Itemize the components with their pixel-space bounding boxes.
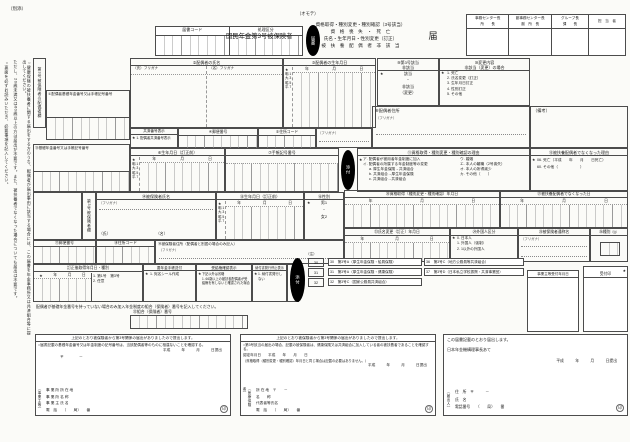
field-insured-sex-label: ⑯性別 [305, 193, 343, 200]
blank-box [33, 192, 82, 240]
spouse-birthdate-era-column: ★ 明.1 大.3 昭.5 平.7 [284, 67, 293, 127]
spouse-birthdate-input[interactable] [293, 73, 375, 127]
alias-furigana-input[interactable] [521, 246, 587, 247]
legend-30: 30 第3号A（厚生年金保険・船員保険） [328, 258, 422, 266]
option-female[interactable]: 女2 [305, 214, 343, 221]
insurer-submit-date: 平成 年 月 日提出 [241, 363, 435, 368]
loss-reason-death[interactable]: 06. 死亡（平成 年 月 日死亡） [537, 157, 625, 164]
field-change-content-sublabel: 非該当（変更）の場合 [441, 65, 528, 70]
field-shubetsu-label: ㉖種別 [599, 230, 610, 234]
employer-line-phone[interactable]: 電 話 （ 局） 番 [46, 407, 217, 413]
employer-role-label: （事業主等） [38, 387, 43, 413]
ymd-day-label: 日 [430, 237, 434, 242]
ymd-month-label: 月 [263, 201, 267, 206]
field-acquisition-date: ⑳資格取得（種別変更・種別確認）年月日 年 月 日 [344, 190, 500, 228]
spouse-address-furigana-area: （フリガナ） [316, 128, 372, 148]
furigana-label: （フリガナ） [317, 129, 371, 135]
field-insured-address-code: ⑱住所コード [96, 240, 155, 264]
approval-table: 事務センター長 所 長 副事務センター長 副 所 長 グループ長 課 長 担 当… [466, 14, 626, 56]
field-spouse-address-code: ⑤住所コード [258, 128, 316, 148]
insurer-confirm-text: ○第3号該当の届出の場合、記載の被保険者は、健康保険又は共済組合に加入している者… [241, 342, 435, 353]
option-separator: ・ [305, 207, 343, 214]
insurer-line-phone[interactable]: 電 話 （ 局） 番 [256, 407, 422, 413]
era-heisei: 平.7 [218, 219, 224, 223]
field-spouse-postal-code: ④郵便番号 [178, 128, 258, 148]
receipt-stamp-area[interactable] [584, 279, 627, 331]
field-dependent-loss-date-label: ㉑被扶養配偶者でなくなった日 [501, 191, 627, 198]
ymd-month-label: 月 [395, 237, 399, 242]
tenpu-oval-stamp: 添付 [341, 150, 355, 190]
sei-label: （氏） [99, 232, 156, 237]
insured-name-furigana-label: （フリガナ） [97, 200, 215, 205]
ymd-month-label: 月 [68, 273, 72, 278]
employer-postal-mark: 〒 － [36, 353, 230, 360]
star-mark: ★ [39, 273, 42, 278]
era-column: ★ 明.1 大.3 昭.5 平.7 [131, 157, 140, 191]
star-mark: ★ [254, 272, 257, 277]
ymd-day-label: 日 [288, 201, 292, 206]
corrected-acquisition-date-input[interactable] [34, 279, 91, 301]
insurer-seal[interactable]: 印 [425, 405, 433, 413]
field-spouse-basic-pension-number: ①配偶者基礎年金番号又は手帳記号番号 [46, 90, 130, 140]
star-mark: ★ [359, 157, 362, 162]
field-kyosai-number-display: 共済番号表示 ★ 1. 配偶者共済番号表示 [130, 128, 178, 148]
star-mark: ★ [307, 200, 310, 206]
applicant-declaration-box: この届書記載のとおり届出します。 日本年金機構理事長あて 平成 年 月 日提出 … [443, 334, 628, 416]
remarks-label: （備考） [531, 107, 627, 115]
insured-birthdate-before-fix-input[interactable] [226, 207, 303, 239]
field-spouse-birthdate-before-fix: ⑥生年月日（訂正前） ★ 明.1 大.3 昭.5 平.7 年 月 日 [130, 148, 225, 192]
star-mark: ★ [532, 157, 535, 164]
approval-col2-bottom: 副 所 長 [509, 21, 550, 27]
spouse-address-furigana-label: （フリガナ） [373, 115, 529, 120]
loss-reason-other[interactable]: 60. その他（ ） [537, 164, 625, 171]
ymd-year-label: 年 [152, 157, 156, 162]
title-prefix: 国民年金第3号被保険者 [226, 31, 292, 40]
field-insured-birthdate-before-fix-label: ⑮生年月日（訂正前） [217, 193, 303, 200]
ymd-day-label: 日 [604, 199, 608, 204]
field-change-content: ⑩変更内容 非該当（変更）の場合 ★ 1. 死亡 2. 氏名変更（訂正） 3. … [439, 58, 530, 106]
field-insured-sex: ⑯性別 ★ 男1 ・ 女2 [304, 192, 344, 240]
star-mark: ★ [623, 268, 626, 273]
approval-col3-bottom: 課 長 [552, 21, 588, 27]
section-b-label-box: 第3号被保険者欄 [82, 192, 96, 240]
option-other[interactable]: 5. その他 [447, 92, 527, 97]
ymd-day-label: 日 [471, 199, 475, 204]
section-a-label: 第3号被保険者の配偶者欄 [37, 67, 43, 118]
field-acquisition-date-label: ⑳資格取得（種別変更・種別確認）年月日 [345, 191, 499, 198]
kumiai-note: 配偶者が基礎年金番号を持っていない場合のみ加入年金制度の組合（保険者）番号を記入… [36, 304, 218, 310]
employer-declaration-box: 上記のとおり被保険者から第3号関係の届出がありましたので提出します。 ○届書記載… [35, 334, 231, 416]
field-no3-applicable: ⑨第3号該当 非該当 ★ 該当 ・ 非該当 （変更） [377, 58, 439, 106]
code-table-header-form-code: 届書コード [156, 27, 230, 35]
legend-37: 37 第3号D（日本私立学校振興・共済事業団） [424, 268, 524, 276]
title-line-2: 資 格 喪 失 ・ 死 亡 [295, 29, 425, 36]
ymd-month-label: 月 [562, 199, 566, 204]
field-spouse-address-label: ⑧配偶者住所 [373, 107, 529, 115]
alias-input[interactable] [521, 256, 587, 257]
insurer-declaration-box: 上記のとおり被保険者から第3号関係の届出がありましたので提出します。 ○第3号該… [240, 334, 436, 416]
star-mark: ★ [198, 272, 201, 277]
field-insured-birthdate-before-fix: ⑮生年月日（訂正前） ★ 明.1 大.3 昭.5 平.7 年 月 日 [216, 192, 304, 240]
shubetsu-note-mark: （注） [610, 230, 618, 234]
code-box-32: 32 [308, 278, 324, 287]
title-line-1: 資格取得・種別変更・種別確認（3号該当） [295, 22, 425, 29]
field-insured-alias: ㉕被保険者通称名 （フリガナ） [518, 228, 590, 262]
field-spouse-address: ⑧配偶者住所 （フリガナ） [372, 106, 530, 148]
spouse-birthdate-before-fix-input[interactable] [140, 163, 224, 191]
alias-furigana-label: （フリガナ） [519, 236, 589, 241]
title-suffix: 届 [428, 29, 437, 42]
ymd-year-label: 年 [237, 201, 241, 206]
margin-note-2: ただし、20歳未満又は60歳以上の方は届出が不要です。また、被扶養者でなくなった… [13, 60, 17, 338]
margin-note-1: ○健康保険の被扶養者に関する届出をする方のうち、配偶者が届出事由に該当する場合に… [22, 60, 31, 338]
field-spouse-techo-number-label: ⑦手帳記号番号 [226, 149, 338, 156]
form-sheet: （別添） （オモテ） 届書コード 処理区分 届書 国民年金第3号被保険者 資格取… [0, 0, 630, 442]
field-dependent-loss-reason-label: ⑫被扶養配偶者でなくなった理由 [531, 149, 627, 156]
insured-address-code-input[interactable] [97, 247, 154, 263]
field-spouse-techo-number: ⑦手帳記号番号 [225, 148, 339, 192]
spouse-sei-input[interactable] [131, 76, 207, 127]
field-spouse-birthdate-before-fix-label: ⑥生年月日（訂正前） [131, 149, 224, 156]
field-spouse-name: ②配偶者の氏名 （氏）フリガナ （名）フリガナ [130, 58, 283, 128]
field-insured-basic-pension-number-label: ⑬基礎年金番号又は手帳記号番号 [34, 145, 129, 152]
field-spouse-basic-pension-number-label: ①配偶者基礎年金番号又は手帳記号番号 [47, 91, 129, 98]
legend-36: 36 第3号C（地方公務員等共済組合） [424, 258, 524, 266]
approval-col4-stamp-area[interactable] [589, 29, 625, 55]
field-insured-postal-code: ⑰郵便番号 [33, 240, 96, 264]
field-dependent-loss-date: ㉑被扶養配偶者でなくなった日 年 月 日 [500, 190, 628, 228]
field-spouse-address-code-label: ⑤住所コード [259, 129, 315, 136]
field-nofusho-teishi: 納付書発行停止表示 ★ 1. 納付書発行しない [252, 264, 287, 302]
spouse-address-furigana-input[interactable] [319, 141, 369, 142]
note-mark: （注） [306, 252, 317, 257]
insured-name-furigana-input[interactable] [99, 209, 213, 210]
ymd-year-label: 年 [305, 67, 309, 72]
option-other-foreigner[interactable]: 2. 1以外の外国人 [457, 247, 516, 252]
era-column: ★ 明.1 大.3 昭.5 平.7 [217, 201, 226, 239]
insurer-role-label: （医療保険者） [243, 387, 253, 413]
star-mark: ★ [132, 136, 135, 140]
field-insured-alias-label: ㉕被保険者通称名 [519, 229, 589, 236]
applicant-line-phone[interactable]: 電話番号 （ 局） 番 [455, 404, 613, 412]
tenpu-oval-stamp-2: 添付 [290, 258, 305, 302]
kyosai-option[interactable]: 1. 配偶者共済番号表示 [136, 136, 170, 140]
approval-col4-top: 担 当 者 [589, 15, 625, 27]
dependent-loss-date-input[interactable] [501, 205, 627, 227]
remarks-box: （備考） [530, 106, 628, 148]
spouse-sei-furigana-label: （氏）フリガナ [131, 66, 206, 74]
field-name-change-date: ㉓氏名変更（訂正）年月日 年 月 日 [344, 228, 450, 262]
option-label-seal[interactable]: 1. 宛名シール作成 [150, 272, 194, 277]
ymd-month-label: 月 [332, 67, 336, 72]
insured-basic-pension-number-input[interactable] [34, 171, 129, 191]
title-line-4: 被 扶 養 配 偶 者 非 該 当 [295, 43, 425, 50]
jukyu-option[interactable]: 1. 66歳以上の被扶養配偶者が受給権を有しないと確認された場合 [202, 277, 250, 286]
star-mark: ★ [441, 71, 444, 76]
ymd-day-label: 日 [208, 157, 212, 162]
applicant-submit-date: 平成 年 月 日提出 [444, 355, 627, 364]
field-foreigner-class: ㉔外国人区分 ★ 0. 日本人 1. 外国人（強制） 2. 1以外の外国人 [450, 228, 518, 262]
era-heisei: 平.7 [285, 85, 291, 89]
ymd-month-label: 月 [180, 157, 184, 162]
spouse-techo-number-input[interactable] [226, 163, 338, 191]
field-shubetsu: ㉖種別（注） [590, 228, 628, 262]
remarks-input[interactable] [531, 115, 627, 147]
field-acquisition-reason-label: ⑪資格取得・種別変更・種別確認の理由 [358, 149, 529, 156]
option-henko: （変更） [378, 90, 438, 96]
option-type-voluntary[interactable]: 2. 任意 [93, 279, 141, 284]
employer-receipt-date-label: 事業主等受付年月日 [528, 271, 578, 278]
applicant-declaration-header: この届書記載のとおり届出します。 [444, 335, 627, 345]
legend-32: 32 第3号C（国家公務員共済組合） [328, 278, 422, 286]
spouse-address-input[interactable] [376, 134, 526, 135]
field-foreigner-class-label: ㉔外国人区分 [451, 229, 517, 236]
spouse-postal-code-input[interactable] [179, 136, 257, 148]
tenpu-oval-label: 添付 [345, 165, 351, 174]
applicant-addressee: 日本年金機構理事長あて [444, 345, 627, 355]
employer-seal[interactable]: 印 [220, 405, 228, 413]
field-insured-name-label: ⑭被保険者氏名 [97, 193, 215, 200]
front-side-note: （オモテ） [297, 11, 318, 17]
field-name-change-date-label: ㉓氏名変更（訂正）年月日 [345, 229, 449, 236]
ymd-month-label: 月 [420, 199, 424, 204]
receipt-stamp-box: ★ 受付印 [583, 266, 628, 332]
field-spouse-birthdate: ③配偶者の生年月日 ★ 明.1 大.3 昭.5 平.7 年 月 日 [283, 58, 376, 128]
field-spouse-postal-code-label: ④郵便番号 [179, 129, 257, 136]
approval-col1-bottom: 所 長 [467, 21, 508, 27]
ymd-day-label: 日 [359, 67, 363, 72]
form-title: 国民年金第3号被保険者 資格取得・種別変更・種別確認（3号該当） 資 格 喪 失… [226, 22, 438, 50]
code-box-30: 30 [308, 258, 324, 267]
margin-note-3: ○裏面を必ずお読みいただき、必要事項を記入してください。 [4, 60, 8, 338]
kumiai-number-input[interactable] [130, 315, 248, 329]
option-male[interactable]: 男1 [305, 200, 343, 207]
approval-col1-stamp-area[interactable] [467, 29, 508, 55]
ymd-year-label: 年 [369, 199, 373, 204]
ymd-year-label: 年 [53, 273, 57, 278]
field-dependent-loss-reason: ⑫被扶養配偶者でなくなった理由 ★ 06. 死亡（平成 年 月 日死亡） 60.… [530, 148, 628, 192]
field-spouse-name-label: ②配偶者の氏名 [131, 59, 282, 66]
form-code-input[interactable] [156, 36, 230, 55]
ymd-day-label: 日 [82, 273, 86, 278]
star-mark: ★ [145, 272, 148, 277]
employer-receipt-date-input[interactable] [528, 278, 578, 331]
field-insured-name: ⑭被保険者氏名 （フリガナ） （氏） （名） [96, 192, 216, 240]
field-corrected-acquisition: 訂正後取得年月日・種別 ★ 年 月 日 1. 第1号 第3号 2. 任意 [33, 264, 143, 302]
shubetsu-input[interactable] [600, 242, 620, 256]
applicant-seal[interactable]: 印 [616, 404, 624, 412]
legend-31: 31 第3号A（厚生年金保険・健康保険） [328, 268, 422, 276]
section-a-label-box: 第3号被保険者の配偶者欄 [33, 58, 46, 128]
field-spouse-birthdate-label: ③配偶者の生年月日 [284, 59, 375, 66]
employer-declaration-header: 上記のとおり被保険者から第3号関係の届出がありましたので提出します。 [36, 335, 230, 342]
reason-i-c[interactable]: c. 共済組合→共済組合 [363, 177, 460, 182]
star-mark: ★ [380, 71, 383, 77]
star-mark: ★ [452, 236, 455, 242]
field-acquisition-reason: ⑪資格取得・種別変更・種別確認の理由 ★ ア. 配偶者が被用者年金制度に加入 イ… [357, 148, 530, 192]
section-b-label: 第3号被保険者欄 [86, 199, 92, 232]
spouse-mei-furigana-label: （名）フリガナ [206, 66, 282, 74]
field-insured-basic-pension-number: ⑬基礎年金番号又は手帳記号番号 [33, 144, 130, 192]
ymd-year-label: 年 [360, 237, 364, 242]
ymd-year-label: 年 [520, 199, 524, 204]
field-no3-not-applicable-label: 非該当 [379, 65, 437, 70]
field-corrected-acquisition-label: 訂正後取得年月日・種別 [34, 265, 142, 272]
applicant-line-address[interactable]: 住 所 〒 － [455, 389, 613, 397]
insurer-declaration-header: 上記のとおり被保険者から第3号関係の届出がありましたので提出します。 [241, 335, 435, 342]
field-jukyuken-kakunin: 受給権確認表示 ★ 下記以外は省略 1. 66歳以上の被扶養配偶者が受給権を有し… [196, 264, 252, 302]
receipt-stamp-label: 受付印 [584, 272, 627, 278]
spouse-address-code-input[interactable] [259, 136, 315, 148]
nofu-option[interactable]: 1. 納付書発行しない [258, 272, 285, 282]
title-line-3: 氏名・生年月日・性別変更（訂正） [295, 36, 425, 43]
tenpu-oval-label-2: 添付 [295, 275, 301, 284]
acquisition-date-input[interactable] [345, 205, 499, 227]
employer-receipt-date-box: 事業主等受付年月日 [527, 270, 579, 332]
attachment-note: （別添） [8, 6, 26, 12]
code-box-31: 31 [308, 268, 324, 277]
reason-ka[interactable]: カ. その他（ ） [460, 172, 528, 177]
applicant-role-label: （届出人） [447, 390, 452, 412]
approval-col3-stamp-area[interactable] [552, 29, 588, 55]
mei-label: （名） [156, 232, 213, 237]
insured-postal-code-input[interactable] [34, 247, 95, 263]
approval-col2-stamp-area[interactable] [509, 29, 550, 55]
applicant-line-name[interactable]: 氏 名 [455, 397, 613, 405]
era-heisei: 平.7 [132, 175, 138, 179]
spouse-mei-input[interactable] [207, 76, 282, 127]
field-techo-sofu: 要年金手帳送付 ★ 1. 宛名シール作成 [143, 264, 196, 302]
spouse-basic-pension-number-input[interactable] [47, 117, 129, 139]
